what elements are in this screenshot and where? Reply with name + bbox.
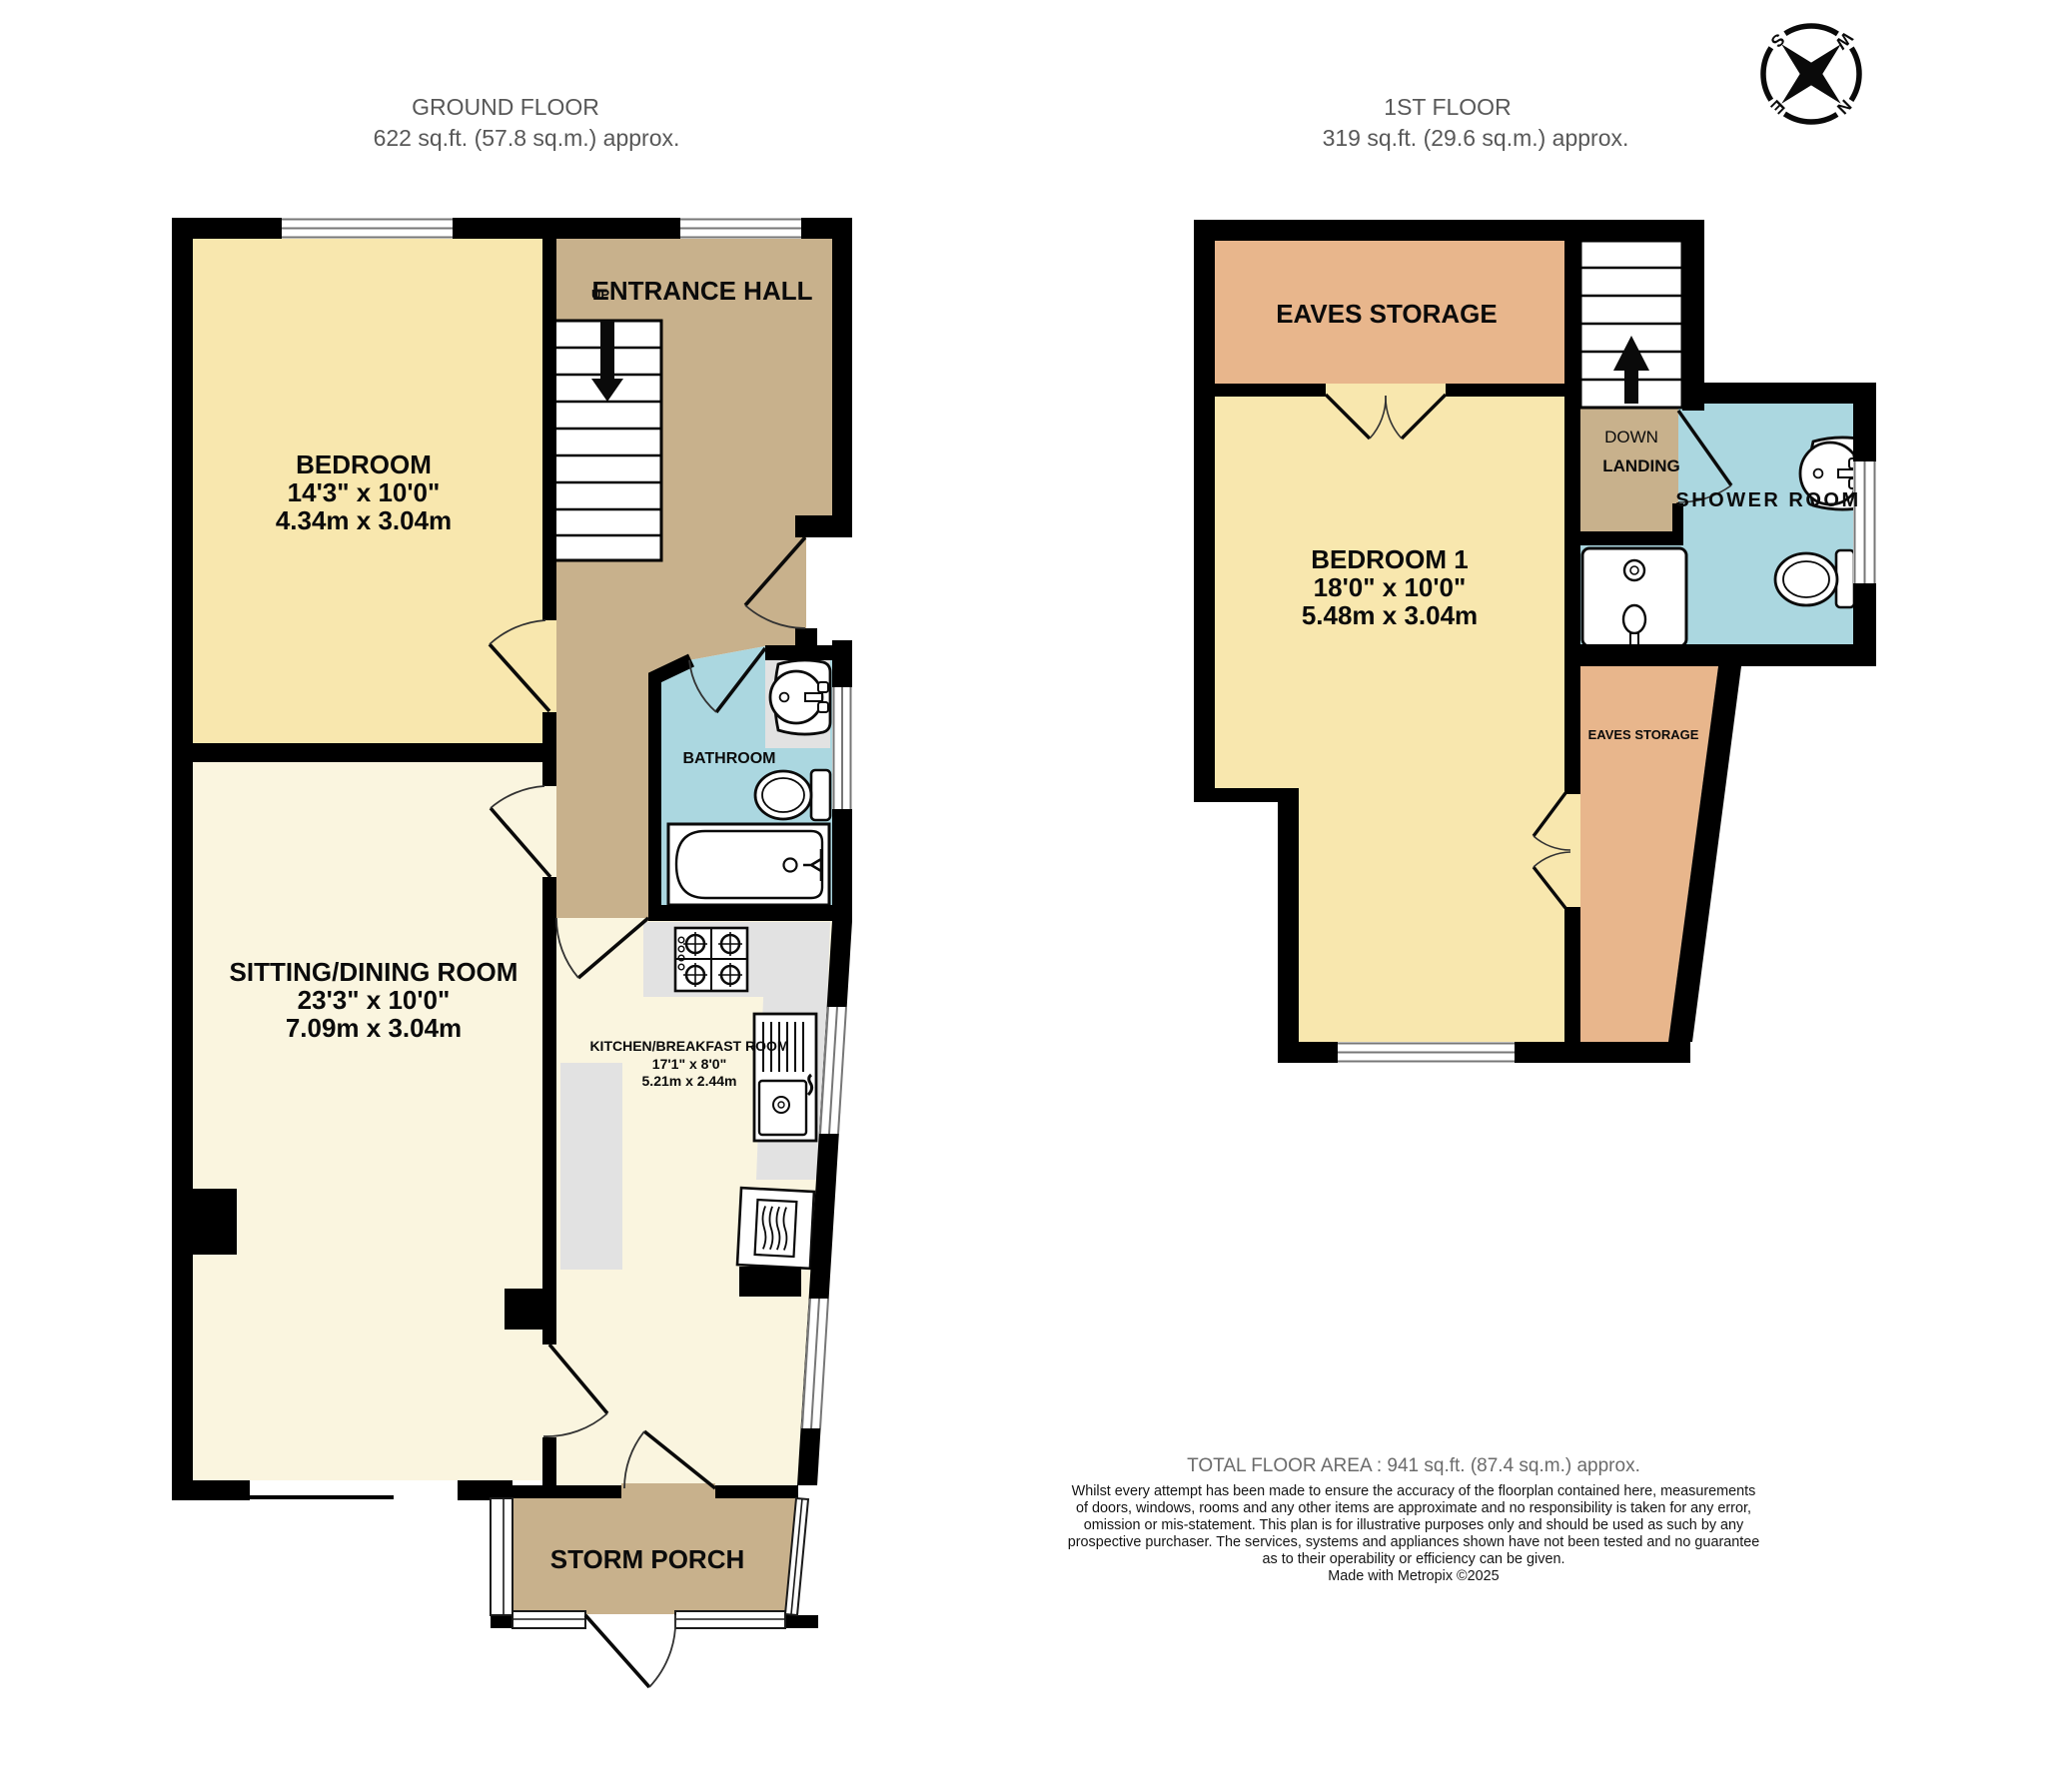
svg-text:BATHROOM: BATHROOM	[682, 750, 775, 767]
svg-text:GROUND FLOOR: GROUND FLOOR	[412, 94, 599, 120]
svg-text:319 sq.ft. (29.6 sq.m.) approx: 319 sq.ft. (29.6 sq.m.) approx.	[1323, 125, 1629, 151]
svg-text:KITCHEN/BREAKFAST ROOM: KITCHEN/BREAKFAST ROOM	[589, 1038, 788, 1054]
svg-text:STORM PORCH: STORM PORCH	[550, 1544, 745, 1574]
svg-text:1ST FLOOR: 1ST FLOOR	[1384, 94, 1511, 120]
svg-text:14'3" x 10'0": 14'3" x 10'0"	[288, 477, 441, 507]
svg-text:BEDROOM 1: BEDROOM 1	[1311, 544, 1468, 574]
svg-text:SITTING/DINING ROOM: SITTING/DINING ROOM	[230, 957, 518, 987]
svg-text:17'1" x 8'0": 17'1" x 8'0"	[652, 1056, 726, 1072]
svg-text:as to their operability or eff: as to their operability or efficiency ca…	[1263, 1551, 1565, 1567]
svg-text:EAVES STORAGE: EAVES STORAGE	[1276, 299, 1498, 329]
svg-text:18'0" x 10'0": 18'0" x 10'0"	[1314, 572, 1467, 602]
svg-text:5.48m x 3.04m: 5.48m x 3.04m	[1302, 600, 1478, 630]
svg-text:of doors, windows, rooms and a: of doors, windows, rooms and any other i…	[1076, 1500, 1751, 1516]
svg-text:4.34m x 3.04m: 4.34m x 3.04m	[276, 505, 452, 535]
svg-text:Whilst every attempt has been: Whilst every attempt has been made to en…	[1072, 1483, 1756, 1499]
svg-text:7.09m x 3.04m: 7.09m x 3.04m	[286, 1013, 462, 1043]
svg-text:SHOWER ROOM: SHOWER ROOM	[1675, 489, 1860, 511]
svg-text:prospective purchaser. The ser: prospective purchaser. The services, sys…	[1068, 1534, 1760, 1550]
svg-text:23'3" x 10'0": 23'3" x 10'0"	[298, 985, 451, 1015]
svg-text:omission or mis-statement. Thi: omission or mis-statement. This plan is …	[1084, 1517, 1744, 1533]
svg-text:TOTAL FLOOR AREA : 941 sq.ft.: TOTAL FLOOR AREA : 941 sq.ft. (87.4 sq.m…	[1187, 1455, 1640, 1476]
svg-text:BEDROOM: BEDROOM	[296, 449, 432, 479]
svg-text:Made with Metropix ©2025: Made with Metropix ©2025	[1328, 1568, 1499, 1584]
svg-text:5.21m x 2.44m: 5.21m x 2.44m	[642, 1073, 737, 1089]
svg-text:LANDING: LANDING	[1602, 456, 1679, 475]
svg-text:622 sq.ft. (57.8 sq.m.) approx: 622 sq.ft. (57.8 sq.m.) approx.	[374, 125, 680, 151]
svg-text:EAVES STORAGE: EAVES STORAGE	[1588, 727, 1699, 742]
svg-text:ENTRANCE HALL: ENTRANCE HALL	[592, 276, 813, 306]
svg-text:DOWN: DOWN	[1604, 428, 1658, 447]
